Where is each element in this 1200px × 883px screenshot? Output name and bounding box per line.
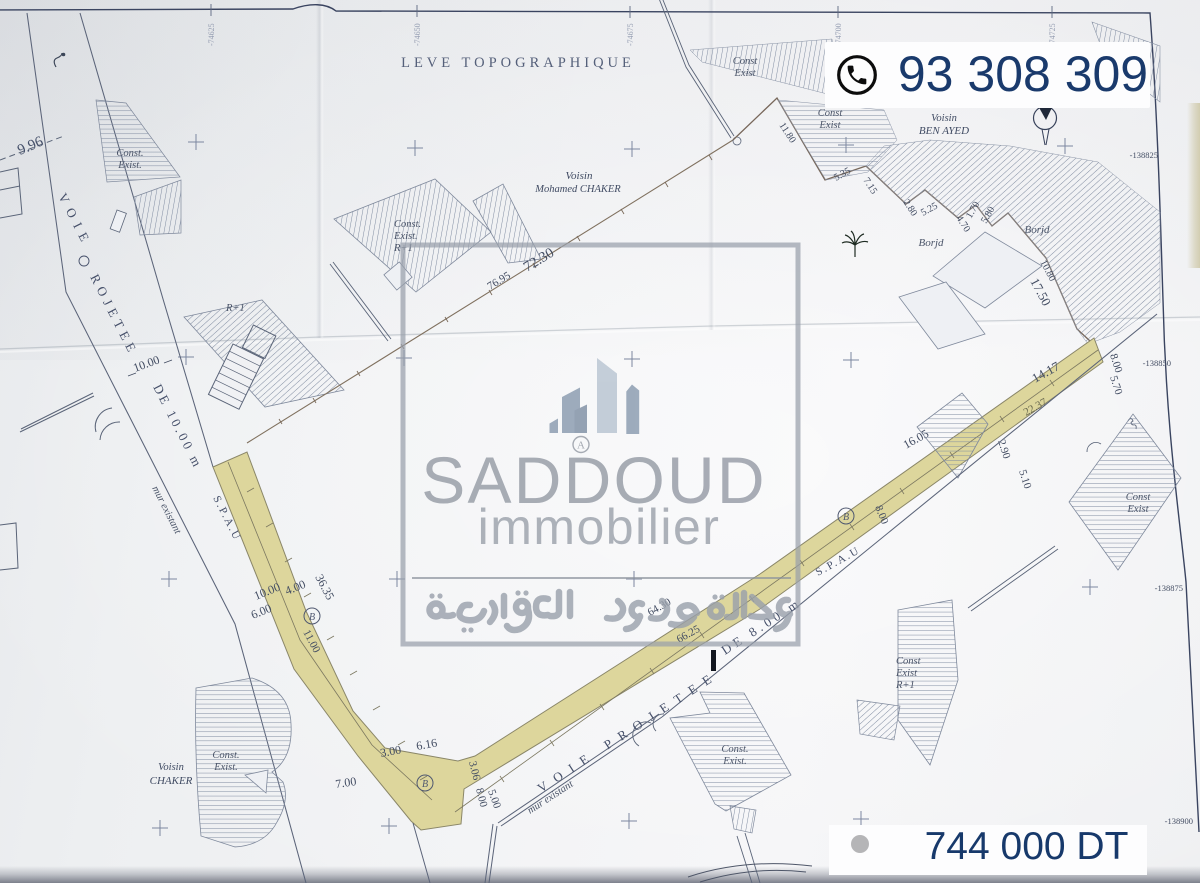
svg-text:Const: Const bbox=[733, 56, 759, 67]
svg-text:BEN AYED: BEN AYED bbox=[919, 125, 969, 137]
svg-text:9.96: 9.96 bbox=[15, 134, 46, 159]
svg-text:Exist.: Exist. bbox=[117, 160, 142, 171]
svg-text:Exist: Exist bbox=[895, 668, 918, 679]
svg-text:Exist: Exist bbox=[734, 68, 757, 79]
svg-text:-138900: -138900 bbox=[1165, 816, 1193, 826]
svg-text:5.00: 5.00 bbox=[485, 788, 503, 811]
svg-text:Voisin: Voisin bbox=[566, 170, 593, 182]
svg-text:Mohamed CHAKER: Mohamed CHAKER bbox=[534, 184, 621, 195]
svg-text:5.10: 5.10 bbox=[1016, 468, 1034, 490]
svg-text:-138850: -138850 bbox=[1143, 358, 1171, 368]
svg-text:-138875: -138875 bbox=[1155, 583, 1183, 593]
svg-text:Const.: Const. bbox=[116, 148, 143, 159]
svg-text:R+1: R+1 bbox=[225, 303, 245, 314]
svg-text:mur existant: mur existant bbox=[149, 484, 183, 536]
svg-text:2.80: 2.80 bbox=[900, 198, 919, 219]
svg-text:Exist.: Exist. bbox=[213, 762, 238, 773]
svg-text:Const.: Const. bbox=[394, 219, 421, 230]
svg-text:Const.: Const. bbox=[721, 744, 748, 755]
svg-text:-74650: -74650 bbox=[413, 23, 422, 46]
svg-text:-74675: -74675 bbox=[626, 23, 635, 46]
svg-text:Exist.: Exist. bbox=[393, 231, 418, 242]
svg-text:ROJETEE: ROJETEE bbox=[87, 272, 141, 359]
svg-text:R+1: R+1 bbox=[393, 243, 413, 254]
svg-text:VOIE: VOIE bbox=[55, 191, 95, 250]
svg-text:6.16: 6.16 bbox=[415, 736, 438, 753]
svg-text:Borjd: Borjd bbox=[918, 237, 944, 249]
svg-text:B: B bbox=[309, 612, 315, 623]
svg-text:CHAKER: CHAKER bbox=[150, 775, 193, 787]
svg-text:B: B bbox=[843, 512, 849, 523]
svg-text:Voisin: Voisin bbox=[931, 113, 957, 124]
svg-text:Const: Const bbox=[818, 108, 844, 119]
svg-text:5.25: 5.25 bbox=[919, 201, 940, 219]
svg-text:8.00: 8.00 bbox=[1107, 352, 1125, 374]
svg-text:-74625: -74625 bbox=[207, 23, 216, 46]
svg-text:R+1: R+1 bbox=[895, 680, 915, 691]
svg-text:Borjd: Borjd bbox=[1024, 224, 1050, 236]
svg-text:Voisin: Voisin bbox=[158, 762, 184, 773]
svg-text:LEVE TOPOGRAPHIQUE: LEVE TOPOGRAPHIQUE bbox=[401, 55, 635, 71]
svg-text:Const: Const bbox=[896, 656, 922, 667]
svg-text:36.35: 36.35 bbox=[312, 572, 337, 602]
svg-text:8.00: 8.00 bbox=[473, 787, 489, 809]
svg-text:Const: Const bbox=[1126, 492, 1152, 503]
svg-text:7.15: 7.15 bbox=[860, 176, 879, 197]
svg-text:5.70: 5.70 bbox=[1107, 374, 1125, 396]
svg-text:Exist.: Exist. bbox=[722, 756, 747, 767]
svg-text:Const.: Const. bbox=[212, 750, 239, 761]
svg-text:B: B bbox=[422, 779, 428, 790]
svg-text:7.00: 7.00 bbox=[334, 774, 357, 791]
svg-text:64.30: 64.30 bbox=[646, 596, 674, 619]
svg-text:Exist: Exist bbox=[819, 120, 842, 131]
svg-text:-138825: -138825 bbox=[1130, 150, 1158, 160]
svg-text:DE 10.00 m: DE 10.00 m bbox=[150, 382, 206, 472]
svg-text:76.95: 76.95 bbox=[485, 269, 513, 292]
svg-text:Exist: Exist bbox=[1127, 504, 1150, 515]
svg-text:2.90: 2.90 bbox=[995, 438, 1013, 460]
svg-text:10.00: 10.00 bbox=[131, 352, 161, 374]
